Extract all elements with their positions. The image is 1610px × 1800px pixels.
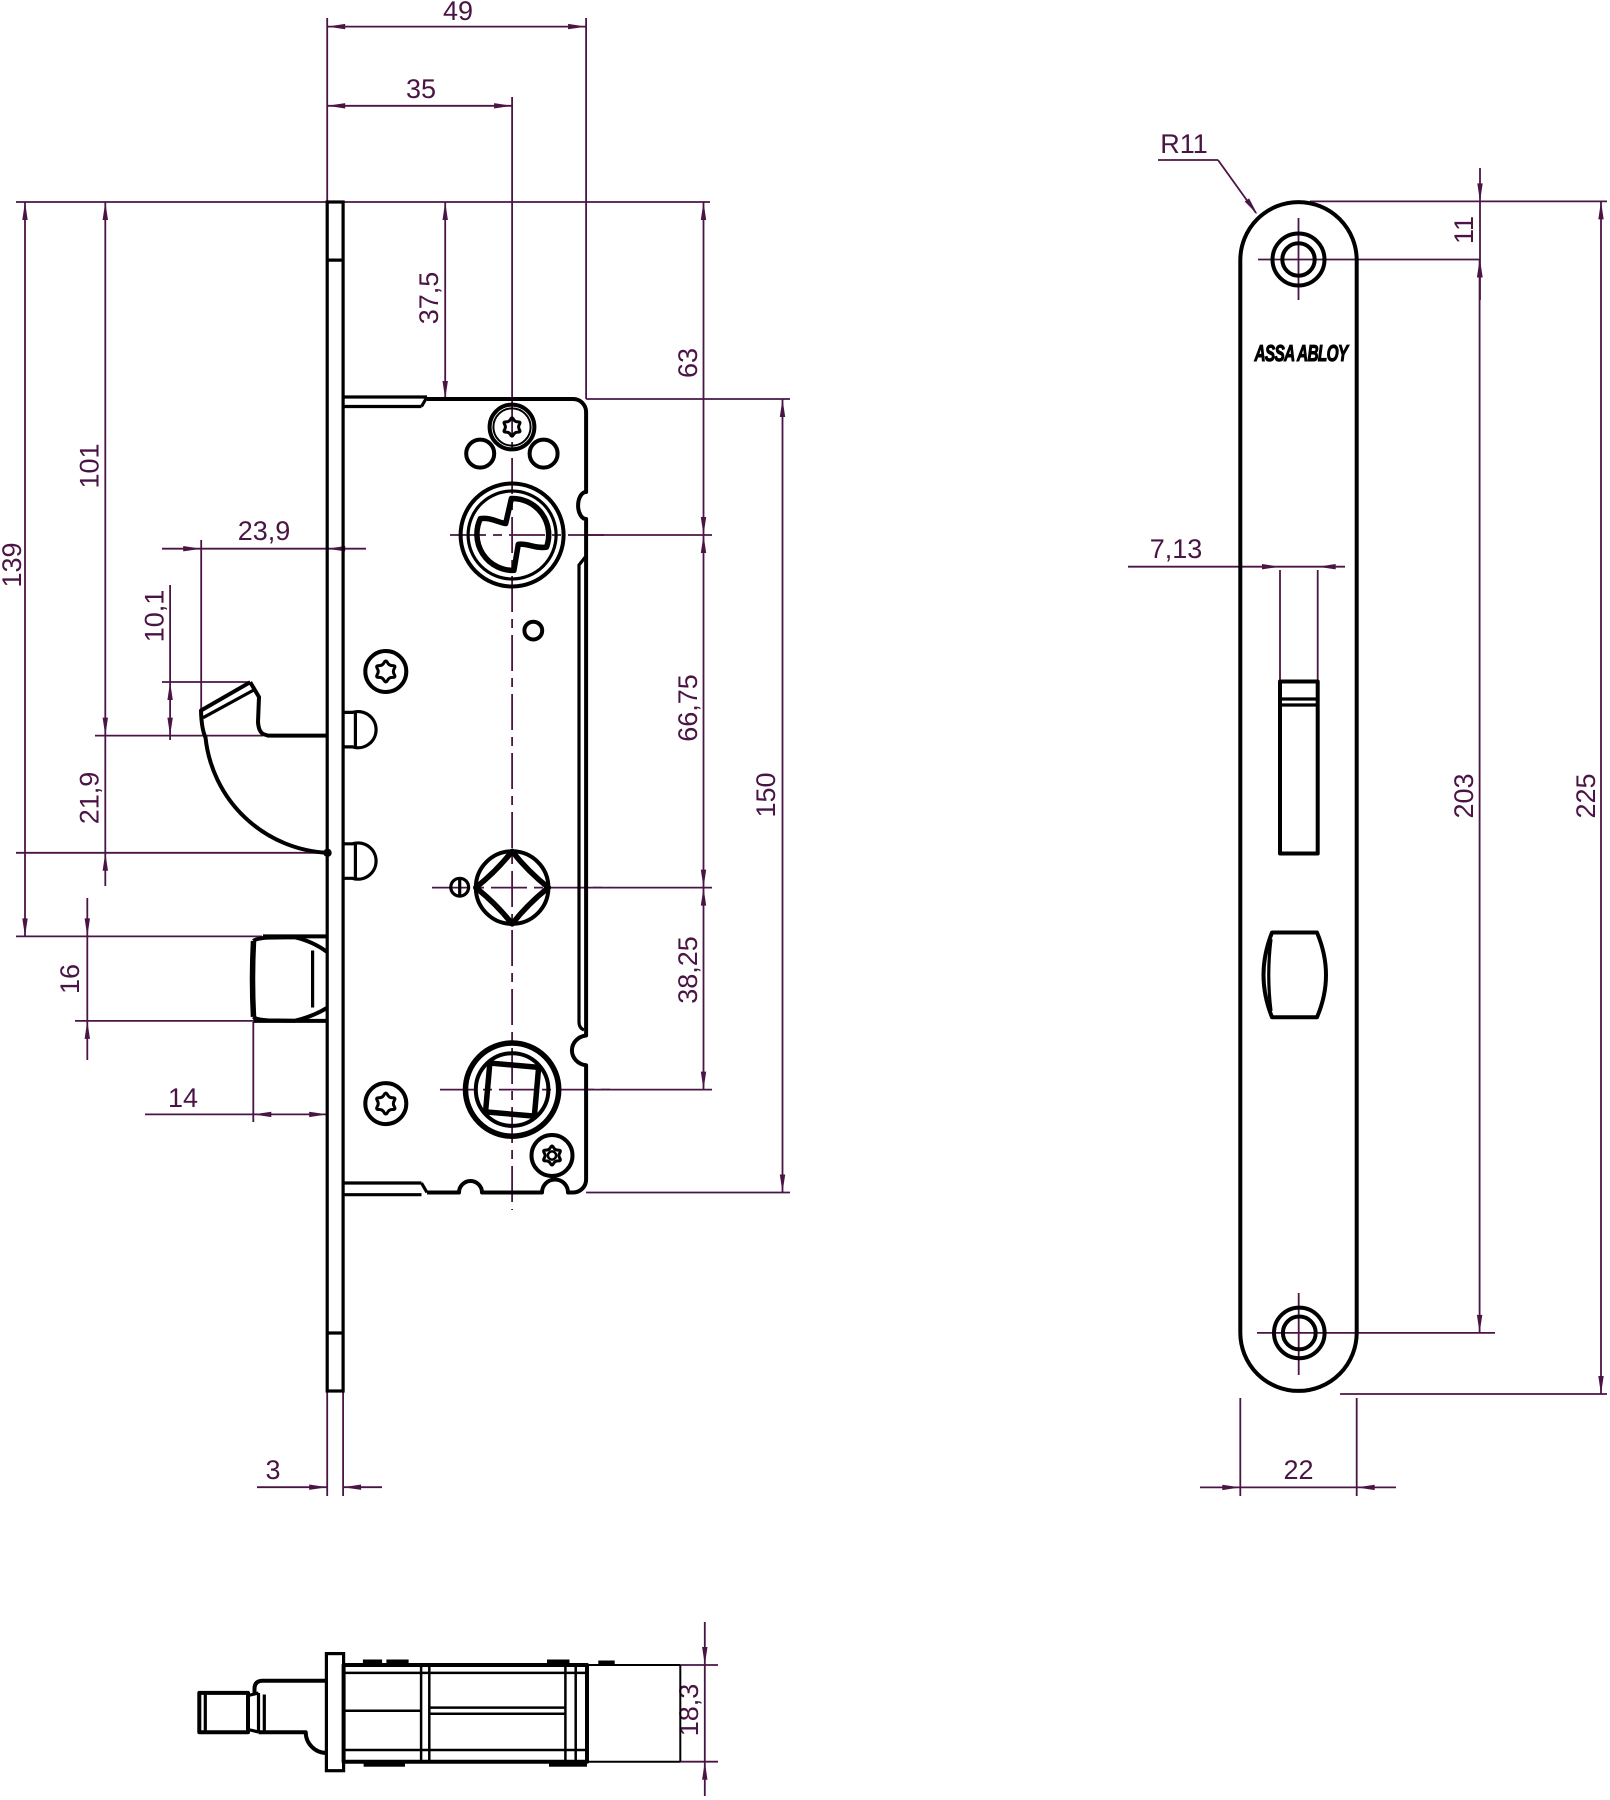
svg-text:22: 22 [1283,1455,1313,1485]
svg-text:101: 101 [75,443,105,488]
svg-text:ASSA ABLOY: ASSA ABLOY [1254,340,1350,366]
svg-text:23,9: 23,9 [238,516,291,546]
svg-text:63: 63 [673,348,703,378]
svg-text:18,3: 18,3 [674,1684,704,1737]
svg-text:225: 225 [1571,773,1601,818]
svg-text:203: 203 [1449,773,1479,818]
svg-text:R11: R11 [1160,129,1208,159]
svg-text:35: 35 [406,74,436,104]
svg-text:66,75: 66,75 [673,674,703,742]
svg-text:14: 14 [168,1083,198,1113]
svg-text:10,1: 10,1 [140,590,170,643]
svg-text:3: 3 [265,1455,280,1485]
svg-text:38,25: 38,25 [673,936,703,1004]
svg-text:139: 139 [0,542,27,587]
svg-text:7,13: 7,13 [1150,534,1203,564]
svg-text:21,9: 21,9 [75,772,105,825]
svg-text:49: 49 [443,0,473,26]
svg-text:16: 16 [55,964,85,994]
svg-text:37,5: 37,5 [414,272,444,325]
svg-text:150: 150 [751,772,781,817]
svg-text:11: 11 [1449,216,1479,244]
